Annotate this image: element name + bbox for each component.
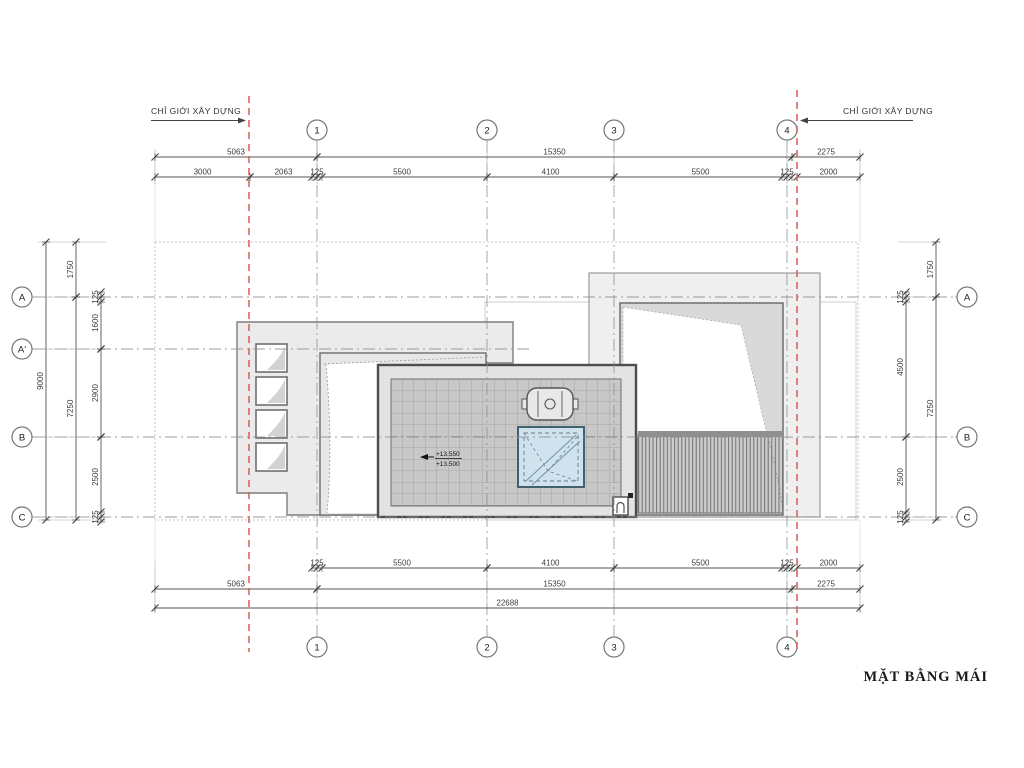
grid-bubble-label: A' xyxy=(18,344,26,355)
dimension-label: 3000 xyxy=(194,168,212,177)
dimension-label: 1750 xyxy=(926,260,935,278)
dimension-label: 22688 xyxy=(496,599,519,608)
grid-bubble-label: 3 xyxy=(611,642,616,653)
dimension-label: 5063 xyxy=(227,580,245,589)
dimension-label: 15350 xyxy=(543,580,566,589)
dimension-label: 2500 xyxy=(896,468,905,486)
courtyard-void xyxy=(326,362,378,513)
dimension-label: 125 xyxy=(896,510,905,524)
dimension-label: 2900 xyxy=(91,384,100,402)
dimension-label: 125 xyxy=(780,559,794,568)
dimension-label: 5500 xyxy=(393,168,411,177)
dimension-label: 125 xyxy=(91,510,100,524)
roof-tile-area xyxy=(391,379,621,506)
dimension-label: 7250 xyxy=(66,399,75,417)
dimension-label: 4100 xyxy=(542,559,560,568)
pergola-beam xyxy=(638,431,783,437)
dimension-label: 5063 xyxy=(227,148,245,157)
grid-bubble-label: A xyxy=(964,292,971,303)
grid-bubble-label: 1 xyxy=(314,642,319,653)
dimension-label: 4100 xyxy=(542,168,560,177)
roof-plan-canvas: +13.550 +13.500 506315350227530002063125… xyxy=(0,0,1024,768)
dimension-label: 125 xyxy=(780,168,794,177)
water-tank xyxy=(522,388,578,420)
grid-bubble-label: C xyxy=(964,512,971,523)
dimension-label: 15350 xyxy=(543,148,566,157)
dimension-label: 9000 xyxy=(36,372,45,390)
setback-label-right: CHỈ GIỚI XÂY DỰNG xyxy=(800,105,933,124)
dimension-label: 1750 xyxy=(66,260,75,278)
louver-window xyxy=(256,377,287,405)
grid-bubble-label: 2 xyxy=(484,125,489,136)
level-upper: +13.550 xyxy=(436,451,460,458)
dimension-label: 5500 xyxy=(692,168,710,177)
setback-label-right-text: CHỈ GIỚI XÂY DỰNG xyxy=(843,105,933,116)
dimension-label: 1600 xyxy=(91,314,100,332)
dimension-label: 2500 xyxy=(91,468,100,486)
dimension-label: 4500 xyxy=(896,358,905,376)
drawing-title: MẶT BẰNG MÁI xyxy=(863,668,988,685)
grid-bubble-label: B xyxy=(19,432,25,443)
grid-bubble-label: B xyxy=(964,432,970,443)
arrow-left-icon xyxy=(800,118,808,124)
dimension-label: 5500 xyxy=(393,559,411,568)
grid-bubble-label: 4 xyxy=(784,642,789,653)
dimension-label: 5500 xyxy=(692,559,710,568)
pergola-slats xyxy=(638,436,783,513)
dimension-label: 2000 xyxy=(820,559,838,568)
louver-window xyxy=(256,443,287,471)
dimension-label: 2275 xyxy=(817,148,835,157)
dimension-label: 2000 xyxy=(820,168,838,177)
grid-bubble-label: 4 xyxy=(784,125,789,136)
grid-bubble-label: 3 xyxy=(611,125,616,136)
grid-bubble-label: 1 xyxy=(314,125,319,136)
skylight xyxy=(518,427,584,487)
grid-bubble-label: 2 xyxy=(484,642,489,653)
louver-window xyxy=(256,410,287,438)
louver-window xyxy=(256,344,287,372)
roof-plan-drawing: +13.550 +13.500 506315350227530002063125… xyxy=(0,0,1024,768)
arrow-right-icon xyxy=(238,118,246,124)
dimension-label: 2275 xyxy=(817,580,835,589)
grid-bubble-label: C xyxy=(19,512,26,523)
dimension-label: 7250 xyxy=(926,399,935,417)
setback-label-left: CHỈ GIỚI XÂY DỰNG xyxy=(151,105,246,124)
setback-label-left-text: CHỈ GIỚI XÂY DỰNG xyxy=(151,105,241,116)
grid-bubble-label: A xyxy=(19,292,26,303)
dimension-label: 2063 xyxy=(275,168,293,177)
level-lower: +13.500 xyxy=(436,461,460,468)
